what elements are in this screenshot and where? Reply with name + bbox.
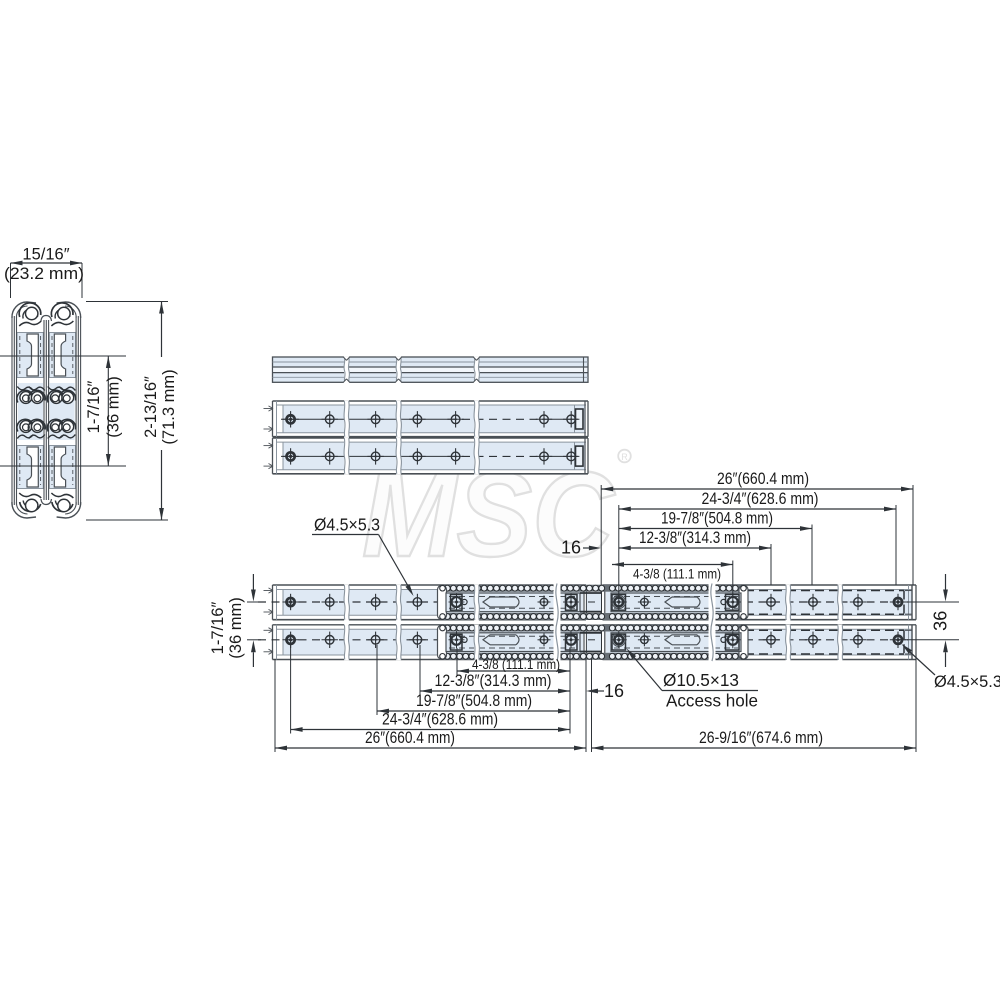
svg-text:(36 mm): (36 mm) <box>104 376 122 437</box>
svg-text:19-7/8″(504.8 mm): 19-7/8″(504.8 mm) <box>661 510 773 528</box>
svg-text:15/16″: 15/16″ <box>22 246 69 264</box>
svg-text:Ø10.5×13: Ø10.5×13 <box>663 670 739 690</box>
svg-text:26″(660.4 mm): 26″(660.4 mm) <box>365 729 455 747</box>
svg-text:1-7/16″: 1-7/16″ <box>209 602 227 655</box>
svg-text:2-13/16″: 2-13/16″ <box>142 376 160 438</box>
svg-text:19-7/8″(504.8 mm): 19-7/8″(504.8 mm) <box>416 692 532 710</box>
svg-text:12-3/8″(314.3 mm): 12-3/8″(314.3 mm) <box>435 672 552 690</box>
svg-text:12-3/8″(314.3 mm): 12-3/8″(314.3 mm) <box>639 529 751 547</box>
svg-text:26-9/16″(674.6 mm): 26-9/16″(674.6 mm) <box>699 729 823 747</box>
svg-text:(36 mm): (36 mm) <box>227 597 245 658</box>
svg-text:24-3/4″(628.6 mm): 24-3/4″(628.6 mm) <box>702 490 819 508</box>
svg-text:Access hole: Access hole <box>666 691 758 711</box>
svg-text:24-3/4″(628.6 mm): 24-3/4″(628.6 mm) <box>382 711 498 729</box>
svg-text:16: 16 <box>561 538 581 558</box>
svg-text:36: 36 <box>931 611 951 631</box>
svg-text:4-3/8 (111.1 mm): 4-3/8 (111.1 mm) <box>472 657 560 672</box>
svg-text:1-7/16″: 1-7/16″ <box>85 381 103 434</box>
svg-text:26″(660.4 mm): 26″(660.4 mm) <box>717 470 809 488</box>
svg-text:4-3/8 (111.1 mm): 4-3/8 (111.1 mm) <box>633 567 721 582</box>
svg-text:(71.3 mm): (71.3 mm) <box>160 369 178 444</box>
svg-text:16: 16 <box>604 681 624 701</box>
svg-text:Ø4.5×5.3: Ø4.5×5.3 <box>934 672 1000 691</box>
svg-text:R: R <box>621 452 628 462</box>
svg-text:Ø4.5×5.3: Ø4.5×5.3 <box>314 515 380 535</box>
svg-text:(23.2 mm): (23.2 mm) <box>4 265 84 283</box>
